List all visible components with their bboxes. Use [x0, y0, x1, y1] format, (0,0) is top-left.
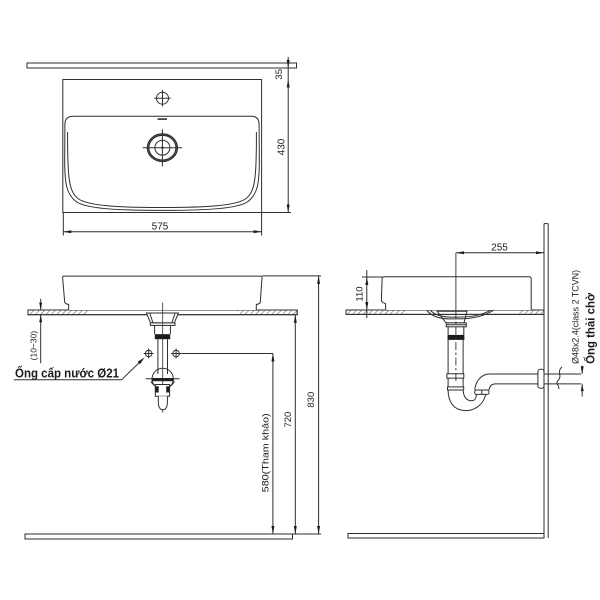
svg-text:Ống thải chờ: Ống thải chờ — [583, 292, 597, 364]
svg-text:Ø48x2.4(class 2 TCVN): Ø48x2.4(class 2 TCVN) — [570, 270, 580, 364]
svg-text:430: 430 — [277, 138, 288, 155]
svg-text:255: 255 — [491, 243, 508, 254]
svg-text:575: 575 — [152, 222, 169, 233]
svg-text:(10~30): (10~30) — [28, 331, 38, 361]
svg-text:580(Tham khảo): 580(Tham khảo) — [260, 413, 271, 492]
svg-text:110: 110 — [354, 286, 365, 301]
svg-text:Ống cấp nước Ø21: Ống cấp nước Ø21 — [15, 366, 119, 381]
svg-text:35: 35 — [274, 69, 285, 80]
svg-text:720: 720 — [283, 412, 294, 428]
svg-text:830: 830 — [306, 392, 317, 408]
